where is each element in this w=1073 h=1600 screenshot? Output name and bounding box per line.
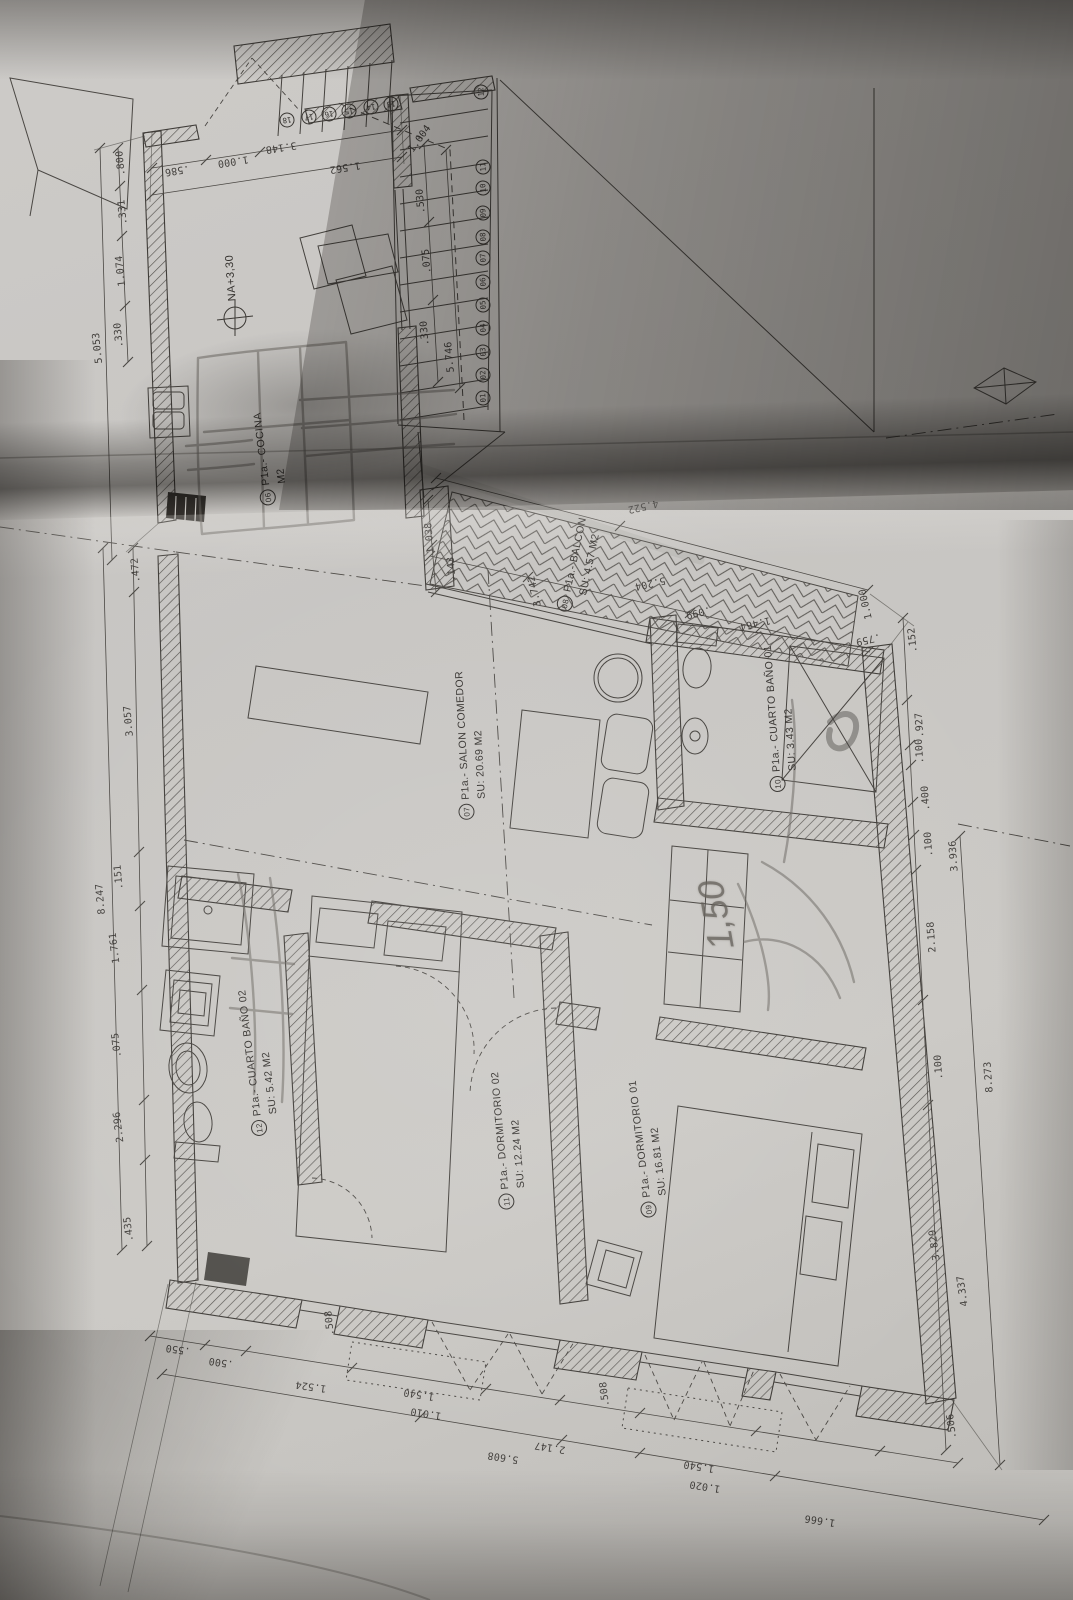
dimension-label: 1.562 xyxy=(329,159,361,175)
dimension-label: .151 xyxy=(112,864,125,890)
level-marker-label: NA+3,30 xyxy=(223,254,238,301)
dimension-label: 1.524 xyxy=(295,1378,327,1393)
room-number: 10 xyxy=(769,775,786,792)
dimension-label: .331 xyxy=(116,199,130,225)
dimension-label: 1.000 xyxy=(217,153,249,169)
stair-step-number: 04 xyxy=(475,320,491,336)
stair-step-number: 14 xyxy=(362,98,379,115)
room-number: 07 xyxy=(458,803,475,820)
dimension-label: 3.057 xyxy=(122,705,136,737)
stair-step-number: 18 xyxy=(278,111,295,128)
room-label-06: 06P1a.- COCINAM2 xyxy=(249,410,290,507)
dimension-label: 5.053 xyxy=(91,332,105,364)
room-label-07: 07P1a.- SALON COMEDORSU: 20.69 M2 xyxy=(451,670,489,820)
dimension-label: .759 xyxy=(855,631,882,647)
dimension-label: .586 xyxy=(164,163,190,178)
room-label-10: 10P1a.- CUARTO BAÑO 01SU: 3.43 M2 xyxy=(760,644,800,793)
dimension-label: 1.010 xyxy=(410,1405,442,1421)
room-label-11: 11P1a.- DORMITORIO 02SU: 12.24 M2 xyxy=(487,1070,529,1210)
dimension-label: .099 xyxy=(685,604,712,620)
stair-step-number: 17 xyxy=(300,108,317,125)
dimension-label: .508 xyxy=(598,1381,612,1407)
dimension-label: .100 xyxy=(914,738,927,764)
dimension-label: 5.746 xyxy=(443,341,457,373)
dimension-label: .143 xyxy=(445,556,458,582)
dimension-label: 1.004 xyxy=(406,123,433,155)
dimension-label: .927 xyxy=(914,712,927,738)
dimension-label: 5.608 xyxy=(487,1449,519,1465)
stair-step-number: 16 xyxy=(320,105,337,122)
dimension-label: 5.204 xyxy=(634,574,667,592)
stair-step-number: 07 xyxy=(475,250,491,266)
stair-step-number: 12 xyxy=(473,84,489,100)
stair-step-number: 06 xyxy=(475,274,491,290)
floorplan-photo: NA+3,30 1,50 .5861.0003.1481.5621.004.53… xyxy=(0,0,1073,1600)
dimension-label: .330 xyxy=(112,322,126,348)
stair-step-number: 09 xyxy=(475,205,491,221)
dimension-label: .506 xyxy=(945,1413,959,1439)
dimension-label: 3.829 xyxy=(927,1229,942,1261)
room-number: 11 xyxy=(498,1193,515,1210)
dimension-label: 4.337 xyxy=(955,1275,970,1307)
handwritten-note: 1,50 xyxy=(689,877,743,953)
room-number: 06 xyxy=(259,488,277,506)
dimension-label: .075 xyxy=(110,1032,124,1058)
dimension-label: 4.522 xyxy=(627,497,660,515)
dimension-label: .500 xyxy=(208,1355,234,1369)
dimension-label: .400 xyxy=(920,785,933,811)
plan-labels: NA+3,30 1,50 .5861.0003.1481.5621.004.53… xyxy=(0,0,1073,1600)
stair-step-number: 15 xyxy=(340,102,357,119)
dimension-label: 1.761 xyxy=(108,932,123,964)
stair-step-number: 02 xyxy=(475,367,491,383)
dimension-label: 8.273 xyxy=(982,1061,995,1093)
dimension-label: .508 xyxy=(323,1310,337,1336)
dimension-label: .075 xyxy=(420,248,433,274)
room-label-08: 08P1a.- BALCONSU: 4.57 M2 xyxy=(555,516,604,616)
dimension-label: 8.247 xyxy=(94,883,108,915)
dimension-label: .530 xyxy=(414,188,427,214)
room-label-09: 09P1a.- DORMITORIO 01SU: 16.81 M2 xyxy=(625,1078,672,1219)
dimension-label: .330 xyxy=(418,320,431,346)
stair-step-number: 08 xyxy=(475,229,491,245)
dimension-label: 1.540 xyxy=(403,1386,435,1402)
dimension-label: .800 xyxy=(114,150,128,176)
room-label-12: 12P1a.- CUARTO BAÑO 02SU: 5.42 M2 xyxy=(234,987,282,1137)
stair-step-number: 13 xyxy=(382,95,399,112)
dimension-label: 1.000 xyxy=(857,588,875,621)
dimension-label: .435 xyxy=(122,1216,136,1242)
stair-step-number: 05 xyxy=(475,297,491,313)
dimension-label: .100 xyxy=(933,1054,946,1080)
dimension-label: 1.074 xyxy=(114,255,128,287)
room-number: 12 xyxy=(250,1119,268,1137)
dimension-label: .100 xyxy=(923,831,936,857)
dimension-label: 3.742 xyxy=(526,575,544,608)
dimension-label: .550 xyxy=(165,1342,191,1356)
stair-step-number: 11 xyxy=(475,159,491,175)
dimension-label: 1.666 xyxy=(804,1512,836,1528)
dimension-label: 2.147 xyxy=(534,1439,566,1455)
stair-step-number: 10 xyxy=(475,180,491,196)
dimension-label: 2.296 xyxy=(112,1111,127,1143)
dimension-label: 1.464 xyxy=(739,614,772,632)
dimension-label: 3.148 xyxy=(265,139,297,155)
dimension-label: 1.038 xyxy=(423,522,437,554)
room-number: 09 xyxy=(640,1201,658,1219)
stair-step-number: 01 xyxy=(475,390,491,406)
room-number: 08 xyxy=(555,594,574,613)
dimension-label: 1.020 xyxy=(689,1478,721,1494)
dimension-label: .152 xyxy=(906,627,920,653)
dimension-label: 1.540 xyxy=(683,1458,715,1474)
stair-step-number: 03 xyxy=(475,344,491,360)
dimension-label: 2.158 xyxy=(925,921,938,953)
dimension-label: 3.936 xyxy=(947,840,960,872)
room-name: P1a.- SALON COMEDOR xyxy=(453,671,472,800)
dimension-label: .472 xyxy=(129,557,142,583)
